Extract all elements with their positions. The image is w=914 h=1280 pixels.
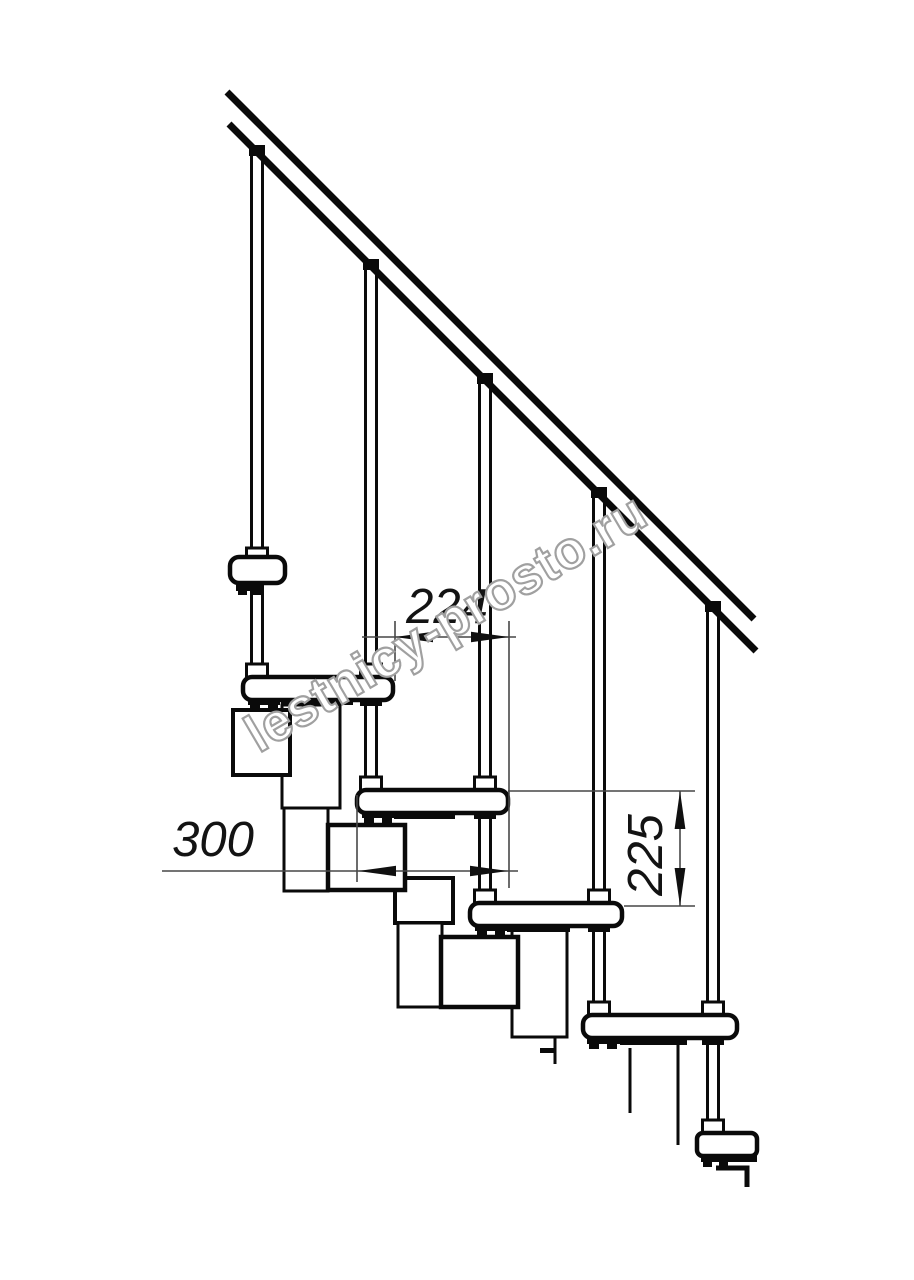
tread-shadow-line [507,925,570,932]
tread-bottom-fragment [697,1133,757,1156]
tread-landing-fragment [230,557,285,583]
baluster-mount-mark [474,812,496,819]
arrowhead-down [675,868,686,906]
mount-under-tread-2 [362,812,496,823]
module-shadow-fragment [540,1048,556,1053]
drawing-canvas: 224 300 225 lestnicy-prosto.ru [0,0,914,1280]
dimension-value-225: 225 [619,813,673,897]
tread-shadow-line [394,812,455,819]
module-box [284,808,328,891]
tread-3 [470,903,622,926]
baluster-mount-mark [588,925,610,932]
baluster-1 [247,145,268,677]
mount-under-tread-4 [587,1037,724,1049]
dimension-value-300: 300 [172,813,254,867]
floor-step-line [716,1168,747,1187]
module-box [328,825,405,890]
mount-under-bottom-fragment [701,1155,757,1187]
tread-4 [583,1015,737,1038]
tread-shadow-line [620,1037,687,1045]
baluster-mount-mark [702,1038,724,1045]
baluster-5 [703,601,724,1133]
tread-2 [357,790,508,813]
module-box [398,923,442,1007]
tread-shadow-line [732,1155,757,1162]
mount-under-landing [236,585,262,595]
staircase-elevation-drawing: 224 300 225 lestnicy-prosto.ru [0,0,914,1280]
arrowhead-up [675,791,686,829]
module-box [441,937,518,1007]
baluster-2 [361,259,382,790]
